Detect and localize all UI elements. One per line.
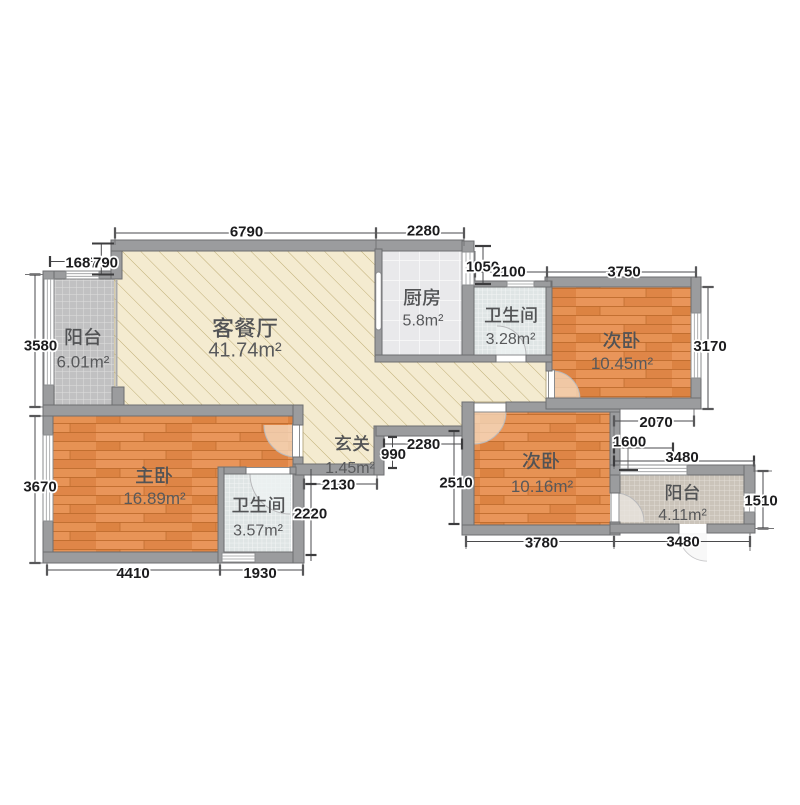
- svg-text:41.74m²: 41.74m²: [208, 340, 282, 362]
- svg-text:3480: 3480: [666, 533, 699, 550]
- svg-text:3.57m²: 3.57m²: [233, 523, 283, 540]
- svg-text:3170: 3170: [693, 338, 726, 355]
- svg-text:990: 990: [381, 446, 406, 463]
- svg-text:790: 790: [93, 254, 118, 271]
- svg-text:3750: 3750: [607, 263, 640, 280]
- svg-text:3670: 3670: [23, 478, 56, 495]
- svg-text:2280: 2280: [407, 222, 440, 239]
- svg-text:3780: 3780: [525, 534, 558, 551]
- svg-text:2130: 2130: [322, 476, 355, 493]
- svg-text:2220: 2220: [294, 505, 327, 522]
- svg-text:4410: 4410: [116, 565, 149, 582]
- svg-text:2070: 2070: [639, 414, 672, 431]
- svg-text:4.11m²: 4.11m²: [658, 507, 707, 524]
- svg-text:1600: 1600: [613, 433, 646, 450]
- svg-text:16.89m²: 16.89m²: [123, 489, 186, 508]
- svg-text:1.45m²: 1.45m²: [325, 460, 375, 477]
- svg-text:3580: 3580: [24, 337, 57, 354]
- svg-text:10.45m²: 10.45m²: [591, 354, 654, 373]
- svg-text:6790: 6790: [230, 223, 263, 240]
- svg-text:1930: 1930: [243, 565, 276, 582]
- svg-text:2100: 2100: [492, 263, 525, 280]
- svg-text:1510: 1510: [744, 492, 777, 509]
- svg-text:2280: 2280: [407, 436, 440, 453]
- svg-text:3480: 3480: [665, 449, 698, 466]
- svg-text:6.01m²: 6.01m²: [57, 353, 110, 372]
- svg-text:5.8m²: 5.8m²: [403, 313, 445, 330]
- svg-text:2510: 2510: [439, 474, 472, 491]
- svg-text:3.28m²: 3.28m²: [486, 331, 536, 348]
- svg-text:10.16m²: 10.16m²: [511, 477, 574, 496]
